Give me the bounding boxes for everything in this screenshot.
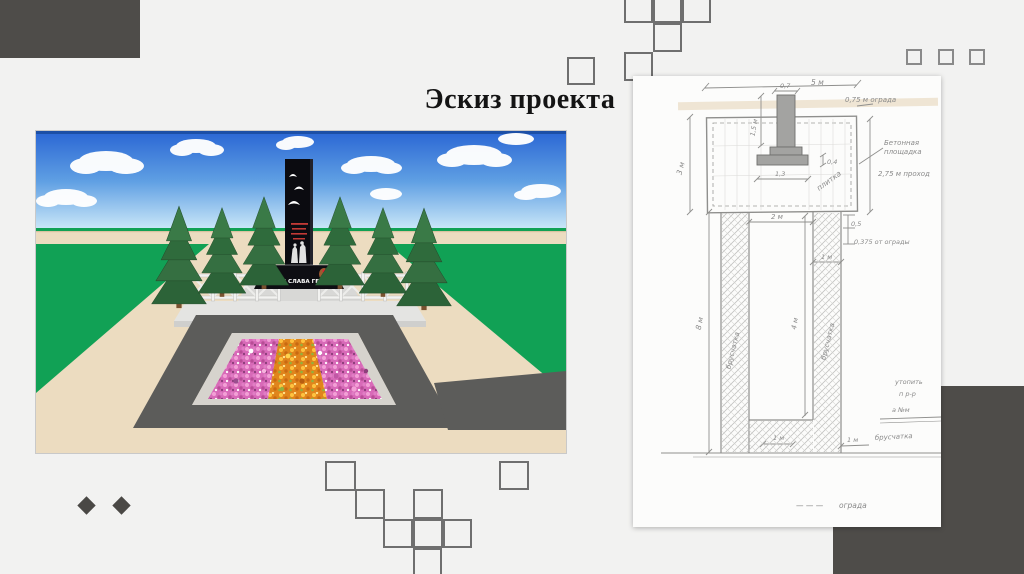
sky-top-edge [36, 131, 566, 134]
monument-stele [285, 159, 313, 265]
decor-square [443, 519, 472, 548]
dim-base-width-label: 1,3 [775, 170, 785, 178]
dim-top-width-label: 5 м [811, 78, 824, 87]
decor-square [653, 0, 682, 23]
memorial-render: ВЕЧНАЯ СЛАВА ГЕРОЯМ [36, 131, 566, 453]
path-right-width-label: 1 м [821, 253, 832, 261]
legend-label: ограда [839, 501, 867, 510]
fence-gap-label: 0,375 от ограды [854, 238, 910, 246]
decor-square [325, 461, 356, 491]
decor-square [499, 461, 529, 490]
scan-stain [678, 98, 938, 111]
plan-lines [661, 80, 941, 457]
decor-square [567, 57, 595, 85]
plan-sketch: 5 м 0,7 1,5 м 1,3 0,4 3 м 0,75 м ограда … [633, 76, 941, 527]
decor-square [624, 0, 653, 23]
sketch-scan-image: 5 м 0,7 1,5 м 1,3 0,4 3 м 0,75 м ограда … [633, 76, 941, 527]
tile-label: плитка [815, 169, 843, 193]
decor-square [413, 489, 443, 519]
path-bottom-right-label: 1 м [847, 436, 858, 444]
decor-square [355, 489, 385, 519]
decor-square [906, 49, 922, 65]
stele-edge [310, 159, 313, 265]
decor-square [969, 49, 985, 65]
legend-dashes: — — — [796, 501, 824, 510]
memorial-render-image: ВЕЧНАЯ СЛАВА ГЕРОЯМ [35, 130, 567, 454]
platform-label-line1: Бетонная [884, 139, 919, 147]
gap-05-label: 0,5 [851, 220, 861, 228]
decor-square [653, 23, 682, 52]
diamond-decor [77, 496, 95, 514]
decor-square [413, 519, 443, 548]
walk-width-label: 2 м [771, 213, 784, 221]
decor-square [413, 548, 442, 574]
decor-square [938, 49, 954, 65]
note-line3: а №м [892, 406, 910, 414]
presentation-slide: Эскиз проекта [0, 0, 1024, 574]
path-bottom-left-label: 1 м [773, 434, 784, 442]
dark-rectangle-top-left [0, 0, 140, 58]
dim-col-height-label: 1,5 м [749, 118, 760, 137]
dim-col-width-label: 0,7 [780, 82, 791, 90]
paving-bottom-label: брусчатка [875, 432, 913, 442]
platform-label-line2: площадка [884, 148, 922, 156]
decor-square [682, 0, 711, 23]
passage-label: 2,75 м проход [878, 170, 930, 178]
note-line2: п р-р [899, 390, 916, 398]
decor-square [383, 519, 413, 548]
total-height-label: 8 м [694, 316, 706, 331]
inner-height-label: 4 м [790, 316, 800, 330]
dim-left-height-label: 3 м [675, 161, 687, 176]
dim-base-height-label: 0,4 [827, 158, 837, 166]
note-line1: утопить [894, 378, 923, 386]
fence-offset-label: 0,75 м ограда [845, 96, 896, 104]
diamond-decor [112, 496, 130, 514]
